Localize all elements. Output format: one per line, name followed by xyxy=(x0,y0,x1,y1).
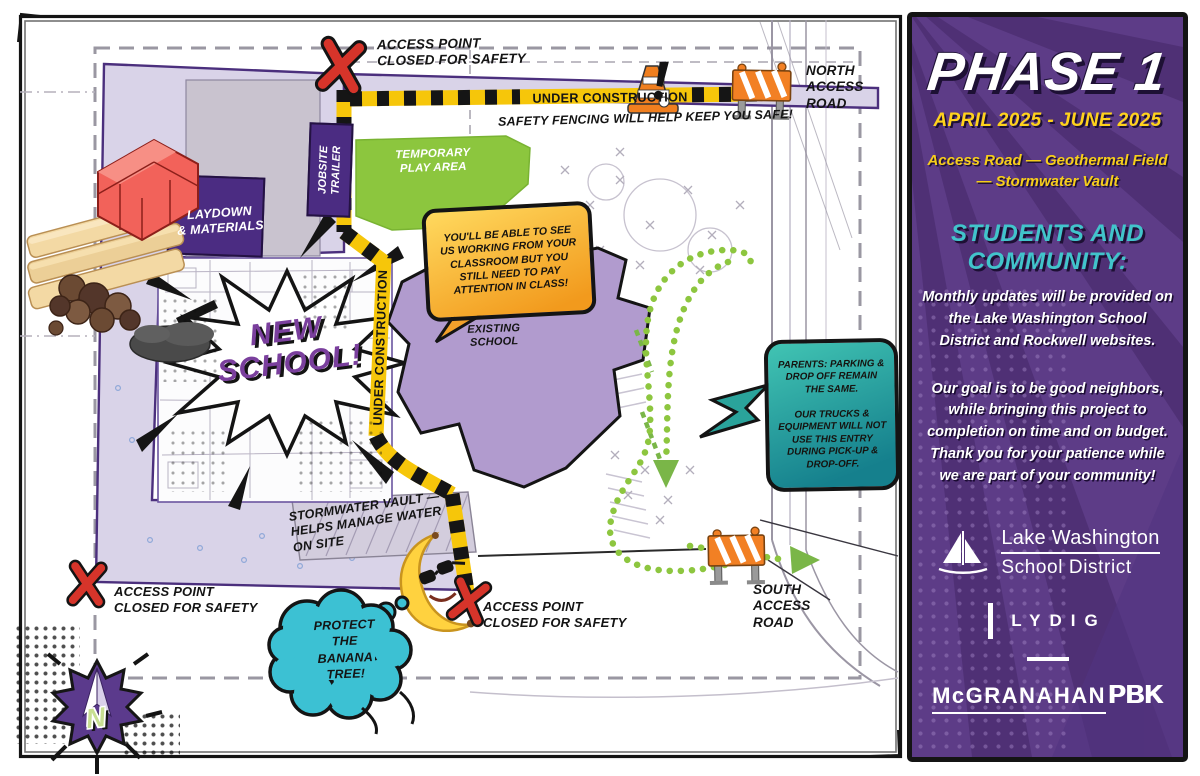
contractor-logo: LYDIG xyxy=(988,603,1106,639)
parents-speech-bubble: PARENTS: PARKING & DROP OFF REMAIN THE S… xyxy=(764,338,901,492)
updates-paragraph: Monthly updates will be provided on the … xyxy=(922,287,1173,352)
phase-info-panel: PHASE 1 APRIL 2025 - JUNE 2025 Access Ro… xyxy=(907,12,1188,762)
architect-name: McGRANAHAN xyxy=(932,683,1106,714)
sailboat-icon xyxy=(935,527,991,579)
halftone-dots xyxy=(168,428,230,492)
access-closed-top-label: ACCESS POINT CLOSED FOR SAFETY xyxy=(377,35,526,71)
access-x-left-icon xyxy=(73,566,101,602)
divider-rule xyxy=(1027,657,1069,661)
north-access-road-label: NORTH ACCESS ROAD xyxy=(806,63,863,112)
barricade-south-icon xyxy=(708,527,765,585)
district-name-line1: Lake Washington xyxy=(1001,527,1159,554)
under-construction-top-label: UNDER CONSTRUCTION xyxy=(529,89,690,106)
phase-scope: Access Road — Geothermal Field — Stormwa… xyxy=(927,150,1167,192)
banana-cloud-text: PROTECT THE BANANA TREE! xyxy=(288,615,402,684)
access-closed-south-label: ACCESS POINT CLOSED FOR SAFETY xyxy=(483,599,627,631)
jobsite-trailer-box: JOBSITE TRAILER xyxy=(306,122,353,217)
phase-title: PHASE 1 xyxy=(925,47,1169,98)
route-dotted xyxy=(610,250,786,571)
district-logo: Lake Washington School District xyxy=(935,527,1159,579)
contractor-name: LYDIG xyxy=(1007,611,1106,631)
site-map-poster: JOBSITE TRAILER N ACCESS POINT CLOSED FO… xyxy=(0,0,1200,776)
phase-dates: APRIL 2025 - JUNE 2025 xyxy=(933,110,1161,132)
parents-bubble-text: PARENTS: PARKING & DROP OFF REMAIN THE S… xyxy=(777,358,887,473)
access-x-top-icon xyxy=(323,44,360,89)
district-name-line2: School District xyxy=(1001,557,1159,579)
compass-north-label: N xyxy=(84,701,108,736)
access-x-south-icon xyxy=(452,581,485,620)
audience-heading: STUDENTS AND COMMUNITY: xyxy=(951,220,1144,275)
classroom-speech-bubble: YOU'LL BE ABLE TO SEE US WORKING FROM YO… xyxy=(421,201,597,323)
halftone-dots xyxy=(296,418,382,492)
existing-school-label: EXISTING SCHOOL xyxy=(450,321,539,351)
jobsite-trailer-label: JOBSITE TRAILER xyxy=(316,125,344,216)
lydig-bar-icon xyxy=(988,603,993,639)
architect-suffix: PBK xyxy=(1108,679,1163,710)
south-access-road-label: SOUTH ACCESS ROAD xyxy=(753,582,810,631)
architect-logo: McGRANAHAN PBK xyxy=(932,679,1163,714)
play-area-label: TEMPORARY PLAY AREA xyxy=(377,145,490,177)
goal-paragraph: Our goal is to be good neighbors, while … xyxy=(927,379,1168,488)
access-closed-left-label: ACCESS POINT CLOSED FOR SAFETY xyxy=(114,584,258,616)
classroom-bubble-text: YOU'LL BE ABLE TO SEE US WORKING FROM YO… xyxy=(439,223,580,299)
